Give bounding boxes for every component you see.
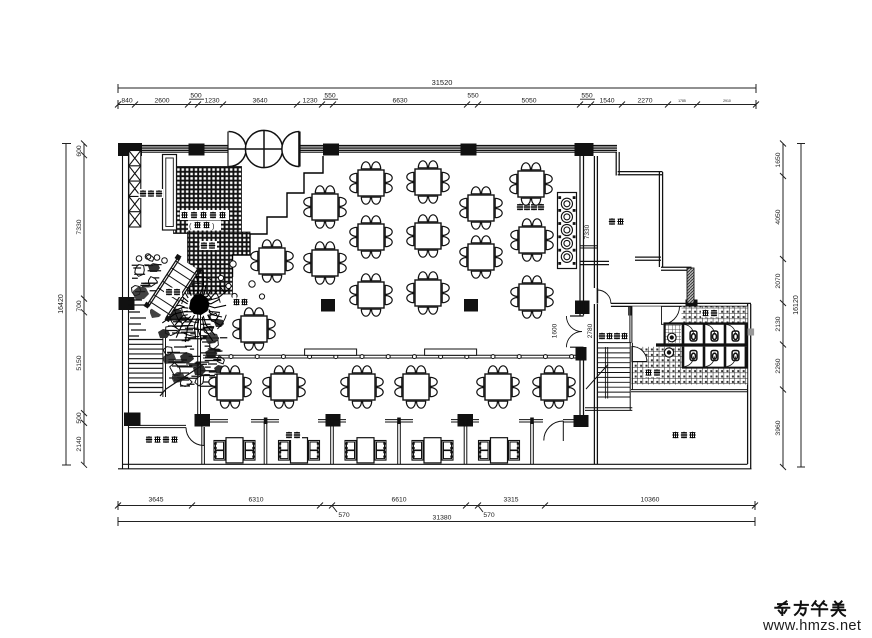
svg-text:840: 840 xyxy=(121,98,133,105)
svg-text:500: 500 xyxy=(190,93,202,100)
svg-text:1600: 1600 xyxy=(552,323,559,338)
svg-text:1230: 1230 xyxy=(302,98,317,105)
svg-text:7330: 7330 xyxy=(76,219,83,234)
svg-text:3960: 3960 xyxy=(775,420,782,435)
svg-text:31380: 31380 xyxy=(433,515,452,522)
svg-text:7330: 7330 xyxy=(584,224,591,239)
svg-text:6610: 6610 xyxy=(391,497,406,504)
svg-text:570: 570 xyxy=(483,512,495,519)
svg-text:10360: 10360 xyxy=(641,497,660,504)
svg-text:2130: 2130 xyxy=(775,316,782,331)
svg-text:2270: 2270 xyxy=(637,98,652,105)
svg-text:500: 500 xyxy=(76,412,83,424)
svg-text:3640: 3640 xyxy=(252,98,267,105)
svg-text:2260: 2260 xyxy=(775,358,782,373)
svg-text:1785: 1785 xyxy=(678,99,686,103)
svg-text:2600: 2600 xyxy=(154,98,169,105)
svg-text:16120: 16120 xyxy=(793,295,800,315)
svg-text:16420: 16420 xyxy=(58,294,65,314)
svg-text:3645: 3645 xyxy=(148,497,163,504)
svg-text:31520: 31520 xyxy=(432,78,453,87)
svg-text:1230: 1230 xyxy=(204,98,219,105)
svg-text:2910: 2910 xyxy=(723,99,731,103)
svg-text:6310: 6310 xyxy=(248,497,263,504)
svg-text:570: 570 xyxy=(338,512,350,519)
svg-text:550: 550 xyxy=(581,93,593,100)
svg-text:700: 700 xyxy=(76,300,83,312)
svg-text:6630: 6630 xyxy=(392,98,407,105)
svg-text:1650: 1650 xyxy=(775,152,782,167)
svg-text:4050: 4050 xyxy=(775,209,782,224)
svg-text:2070: 2070 xyxy=(775,273,782,288)
svg-text:1540: 1540 xyxy=(599,98,614,105)
svg-text:550: 550 xyxy=(324,93,336,100)
svg-text:2780: 2780 xyxy=(587,323,594,338)
svg-text:3315: 3315 xyxy=(503,497,518,504)
svg-text:5150: 5150 xyxy=(76,355,83,370)
svg-text:2140: 2140 xyxy=(76,436,83,451)
svg-text:600: 600 xyxy=(76,145,83,157)
svg-text:www.hmzs.net: www.hmzs.net xyxy=(762,618,861,634)
svg-text:550: 550 xyxy=(467,93,479,100)
svg-text:5050: 5050 xyxy=(521,98,536,105)
